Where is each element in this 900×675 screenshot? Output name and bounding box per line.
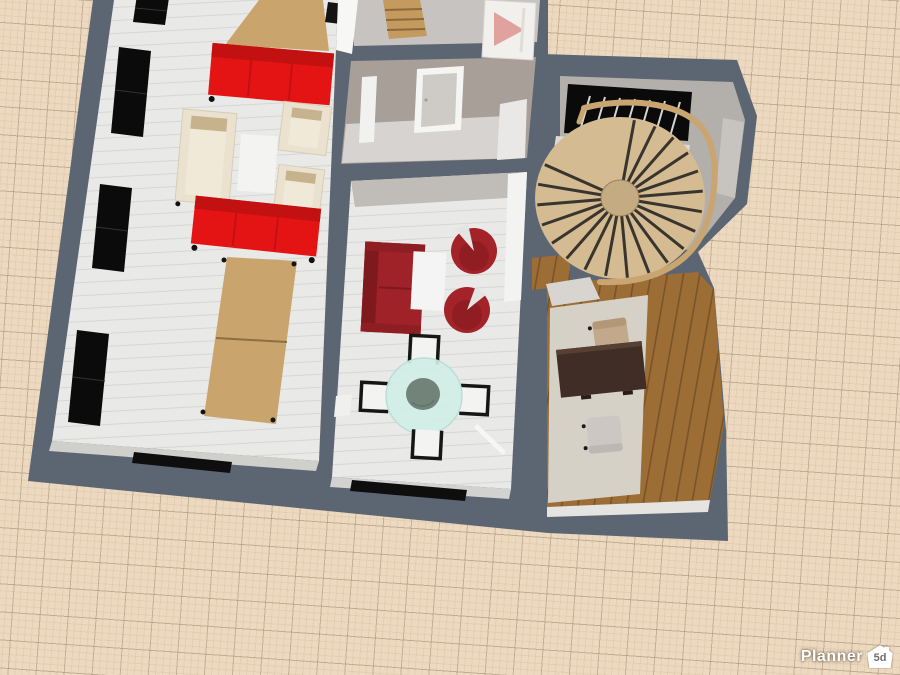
hall-pilaster [359,76,377,143]
cream-sofa[interactable] [175,109,238,211]
framed-art[interactable] [482,0,536,60]
dining-chair-bottom[interactable] [412,429,441,458]
planner5d-render: Planner 5d [0,0,900,675]
straight-stairs[interactable] [383,0,427,39]
white-coffee-table-left[interactable] [237,134,278,193]
white-coffee-table-living[interactable] [411,251,447,311]
watermark-badge-text: 5d [867,652,893,664]
round-red-chair-2[interactable] [444,287,490,333]
floor-plan [0,0,900,675]
hallway-wall-white [497,99,527,160]
hall-door[interactable] [414,66,464,133]
wardrobe-1[interactable] [133,0,170,25]
watermark-brand-text: Planner [801,648,863,666]
dining-chair-right[interactable] [459,385,488,414]
living-left-niche [334,394,352,417]
planner5d-house-icon: 5d [867,645,893,669]
planner5d-watermark: Planner 5d [801,645,893,669]
glass-round-table[interactable] [386,358,462,434]
cream-armchair-1[interactable] [278,101,332,155]
